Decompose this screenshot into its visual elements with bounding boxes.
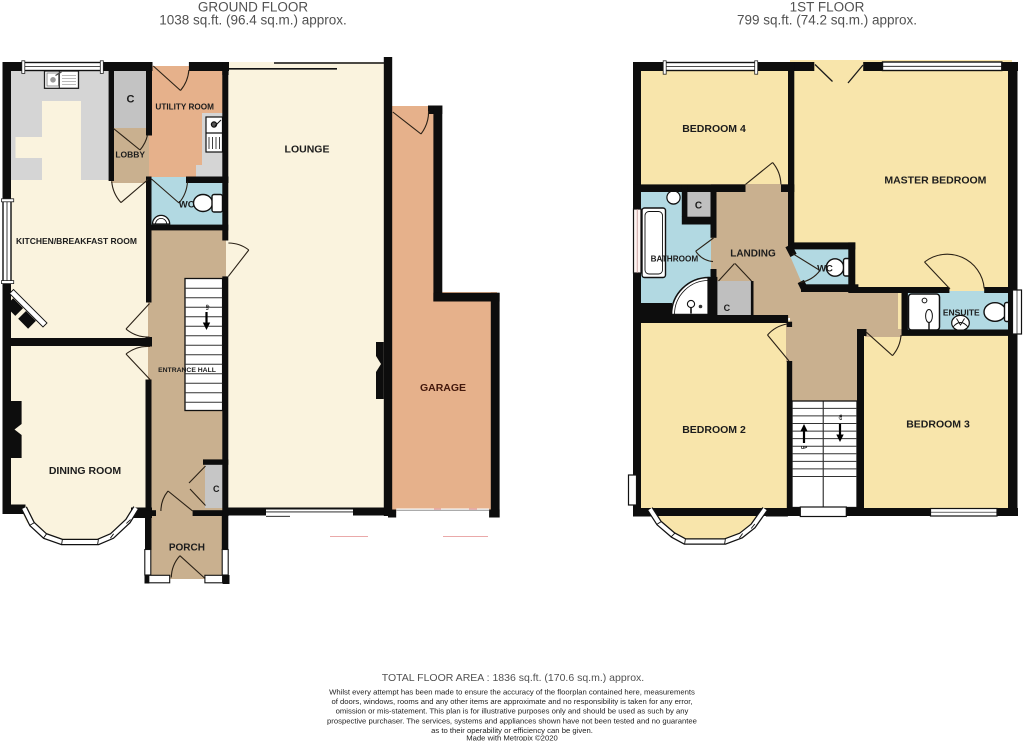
svg-text:799 sq.ft. (74.2 sq.m.) approx: 799 sq.ft. (74.2 sq.m.) approx. (737, 13, 917, 28)
svg-text:PORCH: PORCH (169, 543, 205, 554)
svg-text:TOTAL FLOOR AREA : 1836 sq.ft.: TOTAL FLOOR AREA : 1836 sq.ft. (170.6 sq… (382, 672, 644, 684)
svg-text:WC: WC (179, 200, 195, 211)
svg-text:BEDROOM 4: BEDROOM 4 (682, 123, 746, 135)
svg-text:GARAGE: GARAGE (420, 382, 466, 394)
svg-text:up: up (204, 304, 209, 310)
svg-text:1038 sq.ft. (96.4 sq.m.) appro: 1038 sq.ft. (96.4 sq.m.) approx. (159, 13, 347, 28)
svg-text:C: C (213, 484, 220, 494)
svg-text:BEDROOM 2: BEDROOM 2 (682, 424, 746, 436)
svg-text:ENTRANCE HALL: ENTRANCE HALL (158, 367, 216, 374)
svg-text:Whilst every attempt has been: Whilst every attempt has been made to en… (329, 688, 695, 697)
svg-text:omission or mis-statement. Thi: omission or mis-statement. This plan is … (336, 707, 689, 716)
svg-text:BEDROOM 3: BEDROOM 3 (906, 418, 970, 430)
svg-text:C: C (695, 201, 702, 212)
svg-text:BATHROOM: BATHROOM (651, 255, 699, 264)
svg-text:dn: dn (838, 414, 843, 420)
svg-text:LANDING: LANDING (730, 248, 776, 259)
svg-text:LOBBY: LOBBY (115, 149, 145, 159)
svg-text:C: C (127, 94, 135, 106)
svg-text:prospective purchaser. The ser: prospective purchaser. The services, sys… (327, 716, 697, 725)
svg-text:UP: UP (801, 445, 807, 450)
svg-text:DINING ROOM: DINING ROOM (49, 465, 122, 477)
svg-text:KITCHEN/BREAKFAST ROOM: KITCHEN/BREAKFAST ROOM (16, 236, 137, 246)
svg-text:LOUNGE: LOUNGE (285, 143, 330, 155)
svg-text:of doors, windows, rooms and a: of doors, windows, rooms and any other i… (331, 697, 692, 706)
svg-text:C: C (724, 303, 731, 313)
svg-text:UTILITY ROOM: UTILITY ROOM (155, 103, 214, 112)
svg-text:WC: WC (817, 264, 833, 275)
svg-text:MASTER BEDROOM: MASTER BEDROOM (884, 175, 986, 187)
svg-text:ENSUITE: ENSUITE (943, 308, 980, 318)
svg-text:Made with Metropix ©2020: Made with Metropix ©2020 (466, 734, 558, 741)
